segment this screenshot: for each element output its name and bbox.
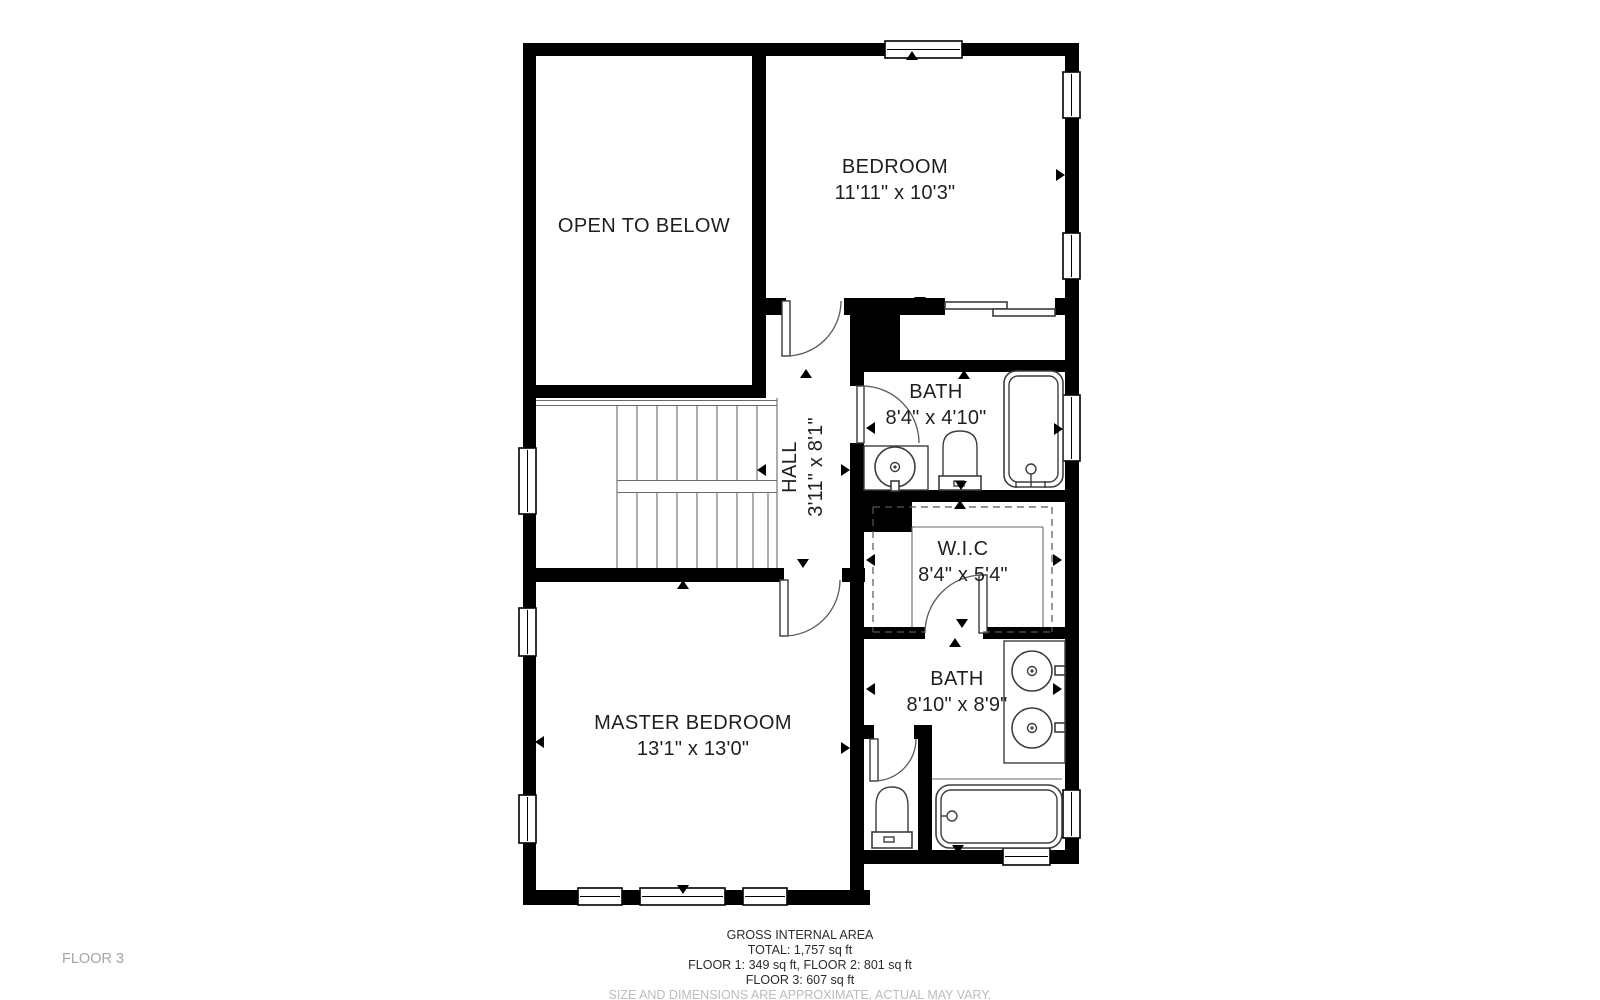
wall-segment (752, 56, 766, 398)
wall-segment (864, 725, 874, 739)
area-disclaimer: SIZE AND DIMENSIONS ARE APPROXIMATE, ACT… (0, 988, 1600, 1000)
arrow-down-icon (956, 619, 968, 628)
area-total: TOTAL: 1,757 sq ft (0, 943, 1600, 958)
door-master-bedroom (780, 580, 840, 636)
closet-sliding-door (945, 302, 1055, 316)
window (519, 795, 536, 843)
wall-segment (850, 372, 864, 386)
wall-segment (850, 568, 864, 905)
arrow-up-icon (949, 638, 961, 647)
window (743, 888, 787, 905)
area-floor-3: FLOOR 3: 607 sq ft (0, 973, 1600, 988)
window (578, 888, 622, 905)
floorplan-page: OPEN TO BELOW BEDROOM 11'11" x 10'3" BAT… (0, 0, 1600, 1000)
sink-counter (864, 446, 928, 491)
window (1063, 395, 1080, 461)
floor-tag: FLOOR 3 (62, 951, 124, 967)
window (1063, 72, 1080, 118)
room-label-bedroom: BEDROOM 11'11" x 10'3" (835, 154, 956, 206)
room-label-wic: W.I.C 8'4" x 5'4" (918, 536, 1008, 588)
door-arc (784, 580, 840, 636)
door-bedroom (782, 301, 841, 356)
room-label-bath-master: BATH 8'10" x 8'9" (907, 666, 1008, 718)
area-floors-1-2: FLOOR 1: 349 sq ft, FLOOR 2: 801 sq ft (0, 958, 1600, 973)
area-title: GROSS INTERNAL AREA (0, 928, 1600, 943)
faucet (1055, 723, 1065, 732)
window (1003, 848, 1050, 865)
wall-segment (523, 385, 766, 398)
arrow-left-icon (866, 422, 875, 434)
toilet (872, 787, 912, 848)
faucet (1055, 666, 1065, 675)
arrow-left-icon (866, 683, 875, 695)
double-vanity (1004, 641, 1065, 763)
window (885, 41, 962, 58)
arrow-left-icon (757, 464, 766, 476)
wall-segment (523, 43, 1079, 56)
door-leaf (782, 301, 790, 356)
arrow-right-icon (841, 742, 850, 754)
window (1063, 233, 1080, 279)
door-leaf (870, 739, 878, 781)
room-label-master-bedroom: MASTER BEDROOM 13'1" x 13'0" (594, 710, 792, 762)
window (519, 608, 536, 656)
arrow-right-icon (1053, 683, 1062, 695)
arrow-right-icon (841, 464, 850, 476)
area-summary: GROSS INTERNAL AREA TOTAL: 1,757 sq ft F… (0, 928, 1600, 1000)
arrow-down-icon (797, 559, 809, 568)
door-arc (874, 739, 916, 781)
wall-segment (844, 298, 945, 315)
door-leaf (857, 386, 864, 443)
wall-segment (983, 627, 1065, 639)
wall-segment (1055, 298, 1065, 315)
door-water-closet (870, 739, 916, 781)
window (519, 448, 536, 514)
wall-segment (536, 568, 784, 582)
arrow-right-icon (1056, 169, 1065, 181)
stairs (536, 398, 777, 568)
room-label-open-to-below: OPEN TO BELOW (558, 213, 730, 239)
wall-segment (918, 725, 932, 850)
bathtub (936, 785, 1062, 848)
room-label-hall: HALL 3'11" x 8'1" (777, 417, 829, 516)
wall-segment (850, 490, 912, 532)
window (1063, 790, 1080, 838)
wall-segment (850, 627, 925, 639)
room-label-bath-upper: BATH 8'4" x 4'10" (886, 379, 987, 431)
arrow-up-icon (800, 369, 812, 378)
door-leaf (780, 580, 788, 636)
faucet (891, 481, 899, 491)
arrow-left-icon (866, 554, 875, 566)
door-arc (786, 301, 841, 356)
arrow-right-icon (1053, 554, 1062, 566)
arrow-left-icon (535, 736, 544, 748)
